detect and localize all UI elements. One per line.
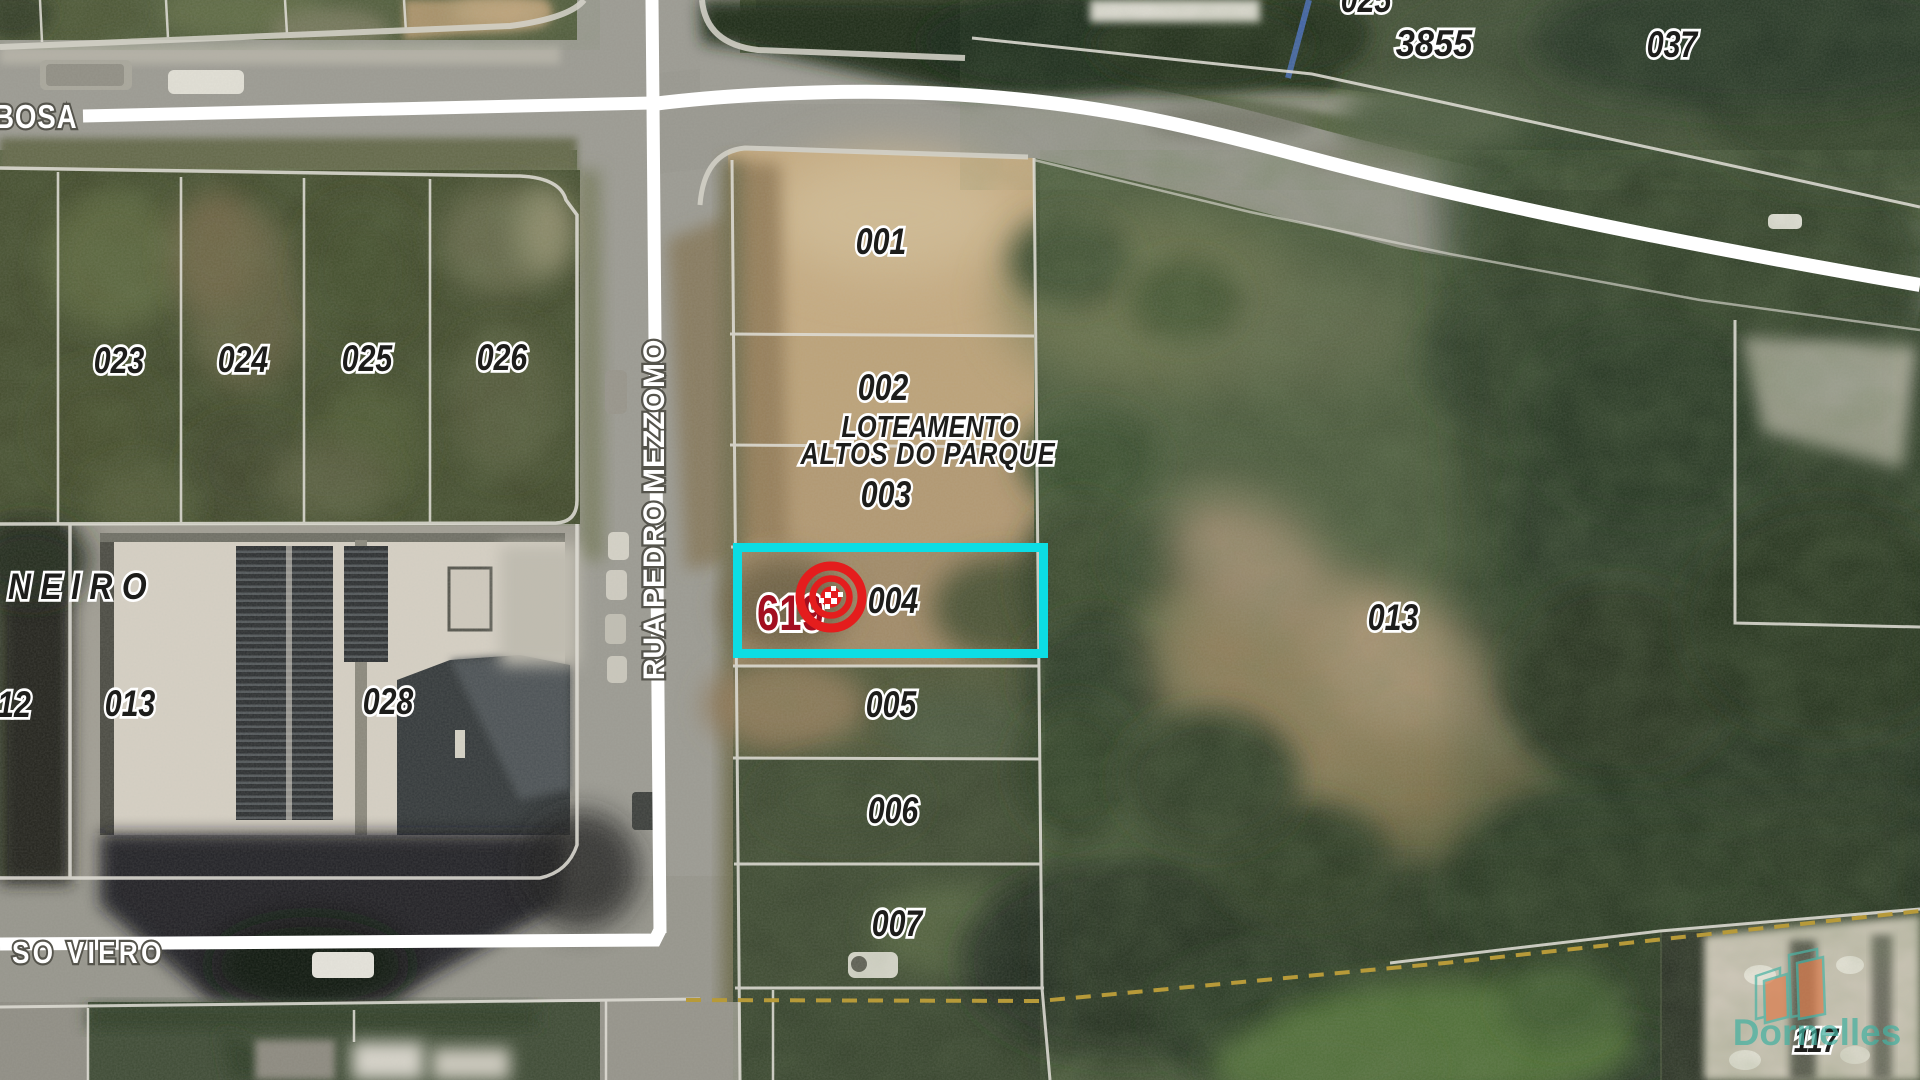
- svg-text:002: 002: [858, 367, 909, 409]
- svg-text:Dornelles: Dornelles: [1733, 1012, 1902, 1053]
- svg-text:026: 026: [477, 337, 528, 379]
- svg-text:SO VIERO: SO VIERO: [12, 936, 165, 971]
- svg-text:NEIRO: NEIRO: [8, 567, 156, 608]
- svg-text:007: 007: [872, 903, 925, 945]
- svg-text:BOSA: BOSA: [0, 99, 77, 136]
- svg-text:003: 003: [861, 474, 912, 516]
- svg-text:12: 12: [0, 684, 31, 726]
- svg-text:023: 023: [94, 340, 145, 382]
- svg-text:037: 037: [1647, 24, 1700, 66]
- svg-text:001: 001: [856, 221, 907, 263]
- svg-text:013: 013: [105, 683, 156, 725]
- svg-text:025: 025: [342, 338, 394, 380]
- svg-text:013: 013: [1368, 597, 1419, 639]
- svg-text:025: 025: [1341, 0, 1393, 21]
- svg-text:005: 005: [866, 684, 918, 726]
- svg-text:RUA PEDRO MEZZOMO: RUA PEDRO MEZZOMO: [638, 340, 671, 681]
- svg-text:024: 024: [218, 339, 269, 381]
- svg-text:028: 028: [363, 681, 414, 723]
- svg-text:3855: 3855: [1396, 23, 1474, 64]
- svg-text:004: 004: [868, 580, 919, 622]
- svg-text:006: 006: [868, 790, 919, 832]
- svg-text:ALTOS DO PARQUE: ALTOS DO PARQUE: [800, 437, 1056, 472]
